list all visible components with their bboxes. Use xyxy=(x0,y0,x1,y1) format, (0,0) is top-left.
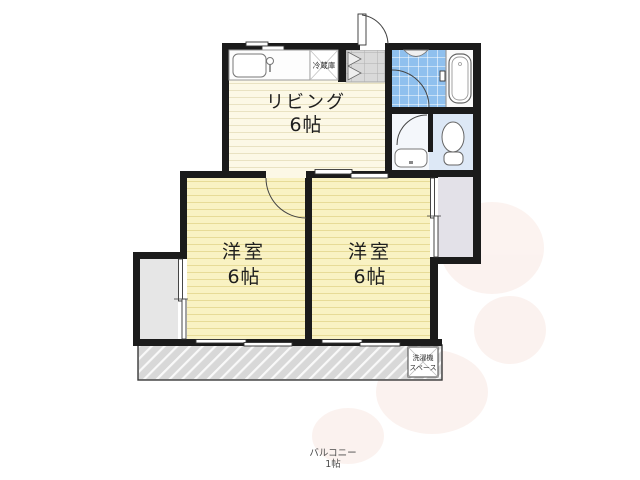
wall-segment xyxy=(338,43,346,82)
bedroom-left-door-opening xyxy=(266,171,306,178)
closet-door-panel xyxy=(431,178,435,218)
wall-segment xyxy=(133,252,140,346)
bedroom-left-size: 6帖 xyxy=(227,266,260,288)
wall-segment xyxy=(305,178,312,346)
washer-label-line2: スペース xyxy=(409,364,436,372)
balcony-window-panel xyxy=(244,343,292,347)
balcony-label: バルコニー xyxy=(309,448,356,459)
wash-basin xyxy=(395,149,427,167)
living-label: リビング xyxy=(266,92,346,113)
wall-segment xyxy=(180,171,187,259)
alcove-window-panel xyxy=(179,259,183,301)
kitchen-window-panel xyxy=(262,46,284,50)
bedroom-right-label: 洋室 xyxy=(348,241,392,263)
wall-segment xyxy=(392,107,481,114)
sliding-door-panel xyxy=(315,170,352,175)
bedroom-right-size: 6帖 xyxy=(353,266,386,288)
sliding-door-panel xyxy=(351,174,388,179)
balcony-size: 1帖 xyxy=(325,458,341,470)
alcove-window-panel xyxy=(182,299,186,339)
wall-segment xyxy=(222,43,229,178)
balcony-window-panel xyxy=(322,340,362,344)
living-size: 6帖 xyxy=(289,114,322,136)
entry-door xyxy=(358,14,366,45)
wall-segment xyxy=(133,252,187,259)
wall-segment xyxy=(180,171,438,178)
floorplan-canvas: リビング 6帖 洋室 6帖 洋室 6帖 冷蔵庫 洗濯機 スペース バルコニー 1… xyxy=(0,0,640,480)
floorplan: リビング 6帖 洋室 6帖 洋室 6帖 冷蔵庫 洗濯機 スペース バルコニー 1… xyxy=(0,0,640,480)
basin-faucet-icon xyxy=(409,161,413,164)
bedroom-left-label: 洋室 xyxy=(222,241,266,263)
closet-door-panel xyxy=(434,216,438,257)
kitchen-window-panel xyxy=(246,42,268,46)
wall-segment xyxy=(385,43,392,177)
washer-label-line1: 洗濯機 xyxy=(413,353,434,362)
kitchen-sink xyxy=(233,54,266,77)
bath-tiles xyxy=(392,50,446,107)
bath-door-handle xyxy=(440,71,445,81)
refrigerator-label: 冷蔵庫 xyxy=(313,60,336,70)
balcony-window-panel xyxy=(196,340,246,344)
balcony-hatch xyxy=(139,346,441,379)
faucet-icon xyxy=(267,58,274,65)
alcove-floor xyxy=(140,259,178,339)
wall-segment xyxy=(428,114,433,152)
wall-segment xyxy=(430,257,438,346)
balcony-window-panel xyxy=(360,343,400,347)
toilet-bowl xyxy=(442,122,464,152)
toilet-base xyxy=(444,152,463,165)
closet-floor xyxy=(438,177,473,257)
wall-segment xyxy=(473,43,481,264)
